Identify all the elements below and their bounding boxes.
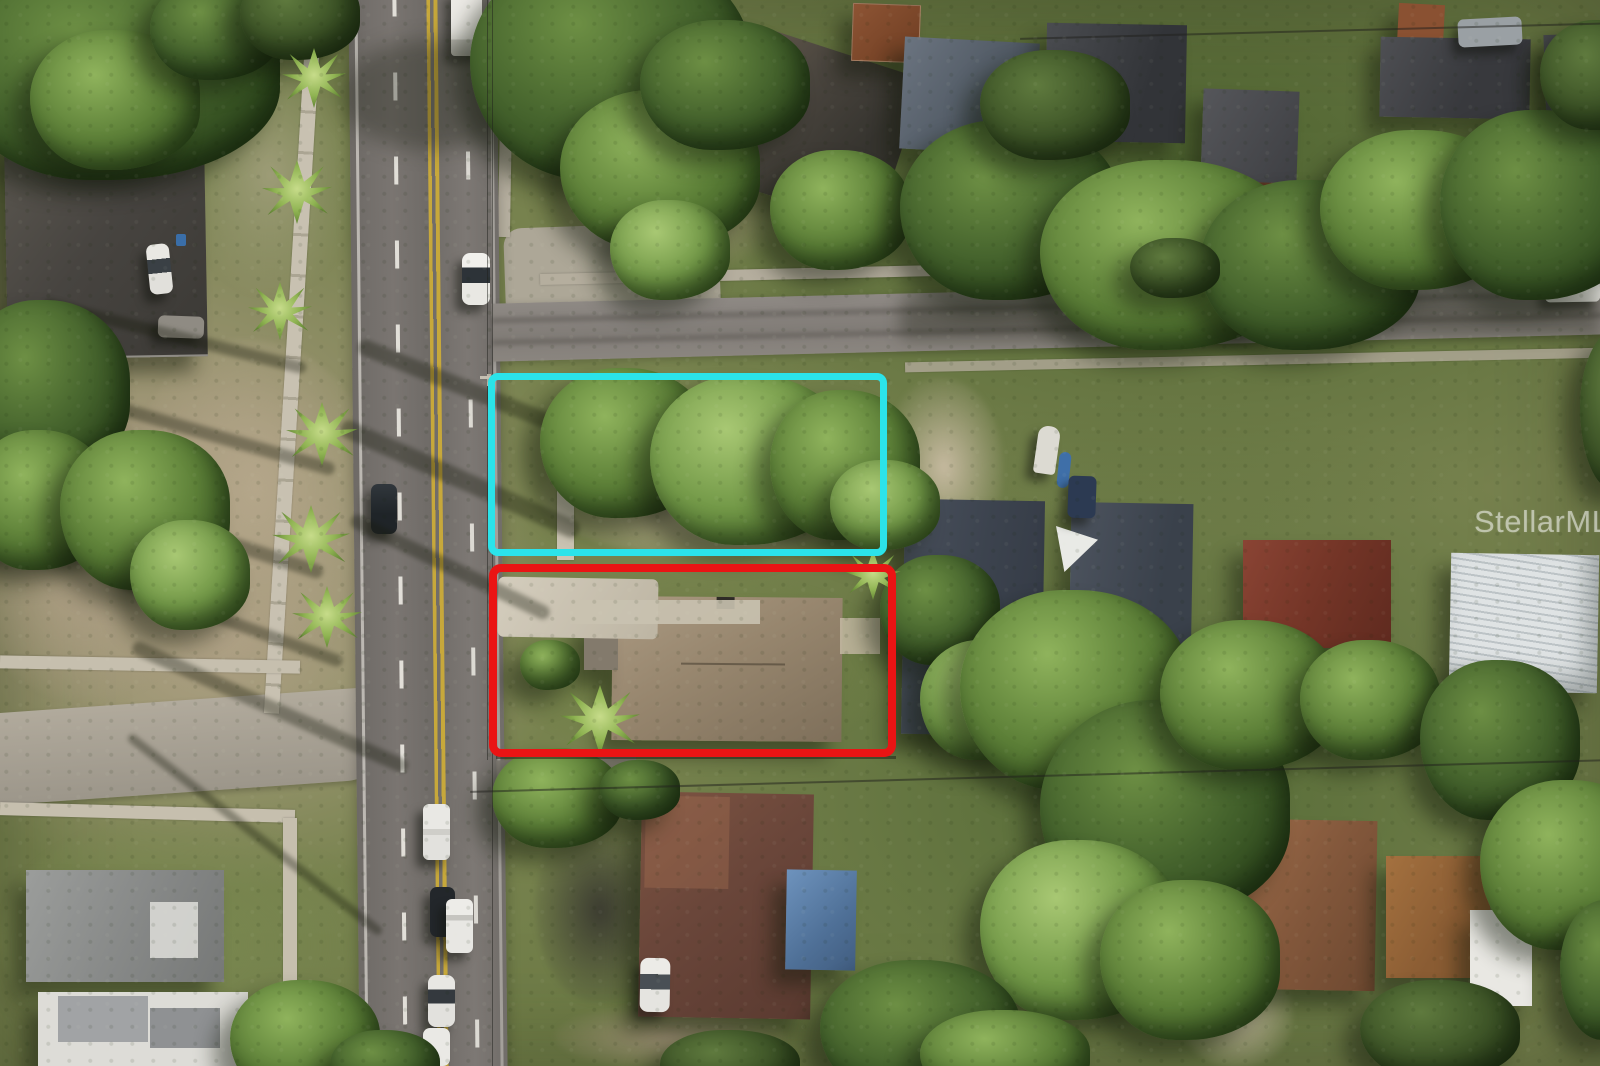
garage-trim-white: [150, 902, 198, 958]
tree-canopy: [610, 200, 730, 300]
blue-tarp-roof: [785, 869, 857, 970]
roof-section-gray: [150, 1008, 220, 1048]
tree-canopy: [1300, 640, 1440, 760]
tree-canopy: [1440, 110, 1600, 300]
suv-gray-top-right: [1457, 16, 1522, 47]
tree-canopy: [1100, 880, 1280, 1040]
roof-section-gray: [58, 996, 148, 1042]
shrub-row: [1130, 238, 1220, 298]
tree-canopy: [130, 520, 250, 630]
tree-canopy: [770, 150, 910, 270]
tree-canopy: [600, 760, 680, 820]
car-white-on-road: [462, 253, 490, 305]
van-white-on-road: [446, 899, 473, 953]
sidewalk-south-of-cross-street: [905, 348, 1600, 373]
vacant-lot-outline-cyan: [488, 373, 887, 556]
pickup-white-on-road: [423, 804, 450, 860]
house-white-bottom-left: [38, 992, 248, 1066]
watermark-text: StellarMLS: [1474, 504, 1600, 540]
car-dark-blue: [1067, 476, 1096, 519]
tree-canopy: [980, 50, 1130, 160]
aerial-photo: StellarMLS: [0, 0, 1600, 1066]
tree-canopy: [1360, 980, 1520, 1066]
car-white-bottom-center: [640, 958, 671, 1013]
car-white-on-road: [428, 975, 455, 1027]
subject-lot-outline-red: [489, 564, 896, 757]
tree-canopy: [640, 20, 810, 150]
house-roof-charcoal-top-right: [1379, 37, 1530, 120]
boat-white: [1033, 425, 1061, 476]
trash-bin-blue: [176, 234, 186, 246]
